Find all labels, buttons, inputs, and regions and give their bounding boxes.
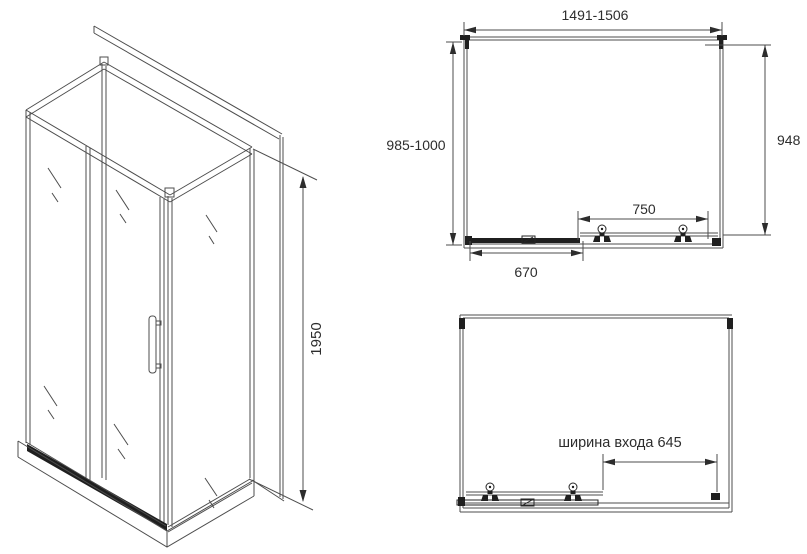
bottom-plan-view: ширина входа 645 [457, 315, 733, 512]
dimension-fixed-670: 670 [470, 241, 583, 280]
dimension-height-1950: 1950 [249, 149, 325, 510]
door-width-dimension-label: 750 [632, 201, 656, 217]
sliding-door-rail [465, 225, 721, 246]
height-dimension-label: 1950 [308, 322, 325, 355]
dimension-door-750: 750 [578, 201, 708, 240]
wall-bracket [711, 493, 720, 500]
glass-hatch-marks [44, 168, 217, 508]
wall-bracket [465, 40, 469, 49]
side-width-dimension-label: 948 [777, 132, 801, 148]
top-plan-view: 1491-1506 985-1000 948 750 [386, 7, 800, 280]
technical-drawing: 1950 [0, 0, 807, 554]
shower-tray [18, 441, 254, 547]
dimension-width-range: 1491-1506 [464, 7, 722, 36]
dimension-depth-range: 985-1000 [386, 42, 462, 245]
dimension-side-948: 948 [705, 45, 801, 235]
width-range-dimension-label: 1491-1506 [562, 7, 629, 23]
wall-bracket [459, 318, 465, 329]
wall-bracket [727, 318, 733, 329]
isometric-view: 1950 [18, 26, 325, 547]
fixed-width-dimension-label: 670 [514, 264, 538, 280]
entrance-width-dimension-label: ширина входа 645 [558, 435, 681, 451]
dimension-entrance-645: ширина входа 645 [558, 435, 717, 492]
drawing-page: 1950 [0, 0, 807, 554]
door-handle [149, 316, 161, 373]
wall-bracket [460, 35, 470, 40]
depth-range-dimension-label: 985-1000 [386, 137, 445, 153]
